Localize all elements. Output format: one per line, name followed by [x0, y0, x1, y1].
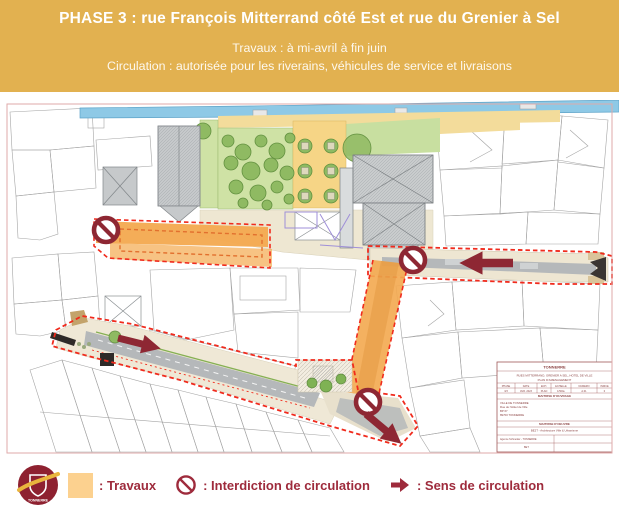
header-subtitle-circulation: Circulation : autorisée pour les riverai… [0, 57, 619, 75]
direction-arrow-icon [389, 474, 411, 496]
travaux-swatch-icon [68, 473, 93, 498]
svg-text:BE2T - Architecture Ville & Ur: BE2T - Architecture Ville & Urbanisme [531, 429, 579, 433]
svg-text:DATE: DATE [523, 385, 530, 388]
svg-text:MAITRISE D'OEUVRE: MAITRISE D'OEUVRE [539, 422, 570, 426]
plan-svg: TONNERRE RUES MITTERRAND, GRENIER A SEL,… [0, 100, 619, 455]
svg-text:3/3: 3/3 [504, 390, 508, 393]
svg-text:Agence Schneider - TONNERRE: Agence Schneider - TONNERRE [500, 438, 537, 441]
header-subtitle-works: Travaux : à mi-avril à fin juin [0, 28, 619, 57]
svg-text:NUMERO: NUMERO [578, 385, 589, 388]
header-banner: PHASE 3 : rue François Mitterrand côté E… [0, 0, 619, 92]
legend-label-interdiction: : Interdiction de circulation [203, 478, 370, 493]
legend-item-travaux: : Travaux [68, 473, 156, 498]
svg-text:89700 TONNERRE: 89700 TONNERRE [500, 413, 524, 417]
svg-text:RUES MITTERRAND, GRENIER A SEL: RUES MITTERRAND, GRENIER A SEL, HOTEL DE… [517, 374, 593, 378]
svg-text:TONNERRE: TONNERRE [28, 499, 49, 503]
svg-text:PLAN: PLAN [541, 390, 548, 393]
legend-items: : Travaux : Interdiction de circulation … [68, 473, 563, 498]
legend-label-sens: : Sens de circulation [417, 478, 544, 493]
svg-text:ECH.: ECH. [541, 385, 547, 388]
church-building [103, 126, 200, 222]
phase3-poster: PHASE 3 : rue François Mitterrand côté E… [0, 0, 619, 518]
svg-text:A.01: A.01 [581, 390, 587, 393]
tonnerre-logo: TONNERRE [16, 463, 60, 507]
page-title: PHASE 3 : rue François Mitterrand côté E… [0, 0, 619, 28]
no-entry-sign-grenier [401, 248, 425, 272]
plan-cartouche: TONNERRE RUES MITTERRAND, GRENIER A SEL,… [497, 362, 612, 452]
svg-text:PLAN D'AMENAGEMENT: PLAN D'AMENAGEMENT [538, 378, 572, 382]
legend-item-interdiction: : Interdiction de circulation [175, 474, 370, 496]
street-west-travaux-zone [94, 219, 272, 268]
no-entry-icon [175, 474, 197, 496]
svg-text:1/500e: 1/500e [557, 390, 565, 393]
svg-text:MAITRISE D'OUVRAGE: MAITRISE D'OUVRAGE [538, 394, 571, 398]
no-entry-sign-west [94, 218, 118, 242]
svg-text:TONNERRE: TONNERRE [543, 365, 566, 370]
legend-item-sens: : Sens de circulation [389, 474, 544, 496]
svg-text:AVR. 2023: AVR. 2023 [520, 390, 533, 393]
svg-text:INDICE: INDICE [600, 385, 609, 388]
legend-bar: TONNERRE : Travaux : Interdiction de cir… [0, 455, 619, 515]
svg-text:ECHELLE: ECHELLE [555, 385, 567, 388]
svg-text:PHASE: PHASE [502, 385, 511, 388]
legend-label-travaux: : Travaux [99, 478, 156, 493]
no-entry-sign-junction [356, 390, 380, 414]
street-plan-map: TONNERRE RUES MITTERRAND, GRENIER A SEL,… [0, 100, 619, 455]
svg-text:BET: BET [524, 446, 529, 449]
